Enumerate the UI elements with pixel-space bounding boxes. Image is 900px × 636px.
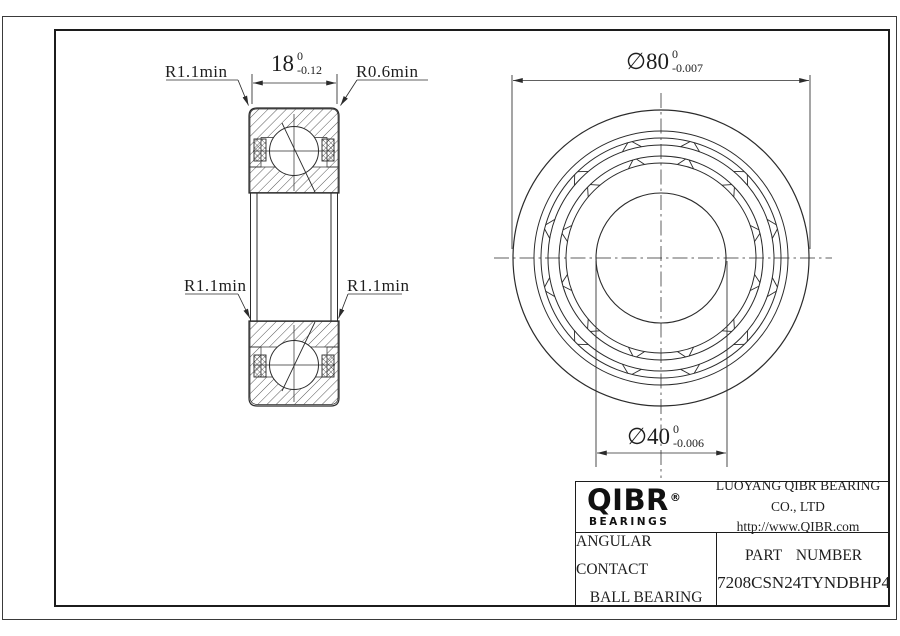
product-type-line2: BALL BEARING	[590, 584, 703, 612]
company-name: LUOYANG QIBR BEARING CO., LTD	[706, 476, 890, 518]
radius-label-top-left: R1.1min	[165, 62, 228, 82]
radius-label-mid-right: R1.1min	[347, 276, 410, 296]
bore-diameter-value: ∅40	[627, 425, 670, 449]
outer-diameter-value: ∅80	[626, 50, 669, 74]
bore-lines	[251, 193, 338, 321]
engineering-drawing-page: R1.1min R0.6min R1.1min R1.1min 18 0 -0.…	[0, 0, 900, 636]
outer-diameter-tolerance: 0 -0.007	[672, 48, 703, 76]
front-view	[494, 93, 832, 478]
cage-top-left	[254, 139, 266, 161]
product-type-line1: ANGULAR CONTACT	[576, 528, 716, 584]
bore-diameter-dimension: ∅40 0 -0.006	[627, 423, 704, 451]
logo-wordmark: QIBR®	[587, 486, 706, 515]
cage-bottom-right	[322, 355, 334, 377]
company-logo: QIBR® BEARINGS	[576, 486, 706, 528]
outer-diameter-dimension: ∅80 0 -0.007	[626, 48, 703, 76]
registered-trademark-symbol: ®	[670, 491, 682, 504]
company-info: LUOYANG QIBR BEARING CO., LTD http://www…	[706, 476, 890, 539]
width-tolerance: 0 -0.12	[297, 50, 322, 78]
title-block-header-row: QIBR® BEARINGS LUOYANG QIBR BEARING CO.,…	[576, 482, 890, 533]
width-value: 18	[271, 52, 294, 76]
cage-bottom-left	[254, 355, 266, 377]
width-dimension: 18 0 -0.12	[271, 50, 322, 78]
bore-diameter-tolerance: 0 -0.006	[673, 423, 704, 451]
radius-label-top-right: R0.6min	[356, 62, 419, 82]
title-block-detail-row: ANGULAR CONTACT BALL BEARING PART NUMBER…	[576, 533, 890, 607]
cage-top-right	[322, 139, 334, 161]
title-block: QIBR® BEARINGS LUOYANG QIBR BEARING CO.,…	[575, 481, 890, 607]
part-number-value: 7208CSN24TYNDBHP4	[717, 569, 890, 596]
radius-label-mid-left: R1.1min	[184, 276, 247, 296]
cross-section-view	[249, 108, 339, 406]
part-number-label: PART NUMBER	[745, 544, 862, 569]
part-number-cell: PART NUMBER 7208CSN24TYNDBHP4	[717, 533, 890, 607]
logo-subtext: BEARINGS	[589, 516, 706, 528]
product-type-cell: ANGULAR CONTACT BALL BEARING	[576, 533, 717, 607]
